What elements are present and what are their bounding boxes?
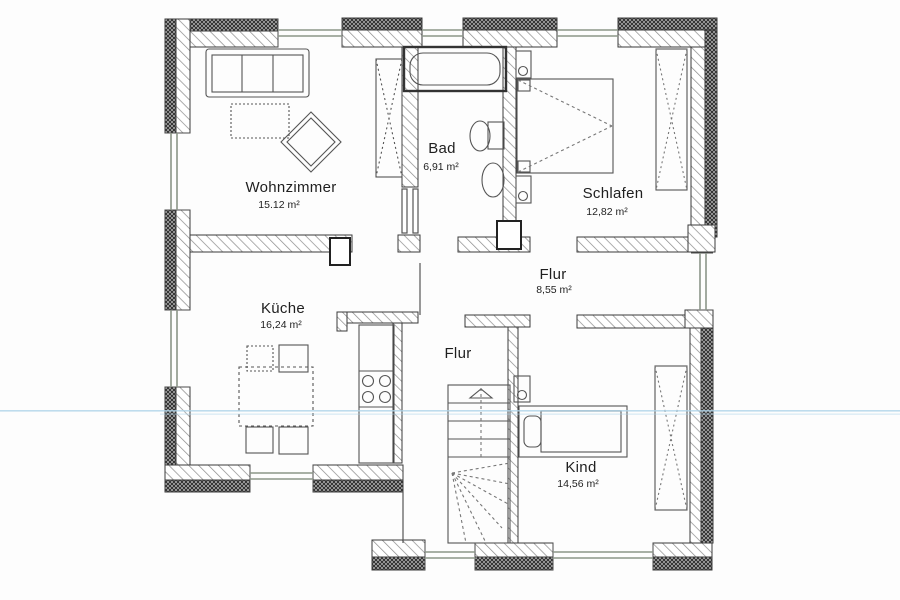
floor-plan-page: Wohnzimmer 15.12 m² Bad 6,91 m² Schlafen… (0, 0, 900, 600)
room-label-kueche: Küche (261, 300, 305, 317)
scan-artifact-lines (0, 410, 900, 415)
kitchen-counter (359, 325, 394, 463)
interior-walls (190, 47, 715, 543)
sink (482, 163, 504, 197)
chair (279, 427, 308, 454)
room-label-kind: Kind (565, 459, 596, 476)
bad-door-jamb (402, 189, 407, 233)
side-table (281, 112, 341, 172)
kitchen-table (239, 367, 313, 426)
toilet (470, 121, 504, 151)
chimney-flue (330, 238, 350, 265)
room-label-flur: Flur (539, 266, 566, 283)
sofa (206, 49, 309, 97)
chair (246, 427, 273, 453)
wall-flur-bottom-left (465, 315, 530, 327)
stove (363, 376, 391, 403)
window-kind-bottom (553, 552, 653, 558)
furniture (206, 47, 687, 543)
window-kueche-bottom (250, 473, 313, 479)
wall-dark-band (372, 557, 425, 570)
stairs (448, 385, 510, 543)
wall-schlafen-bottom (577, 237, 693, 252)
wall-wohnzimmer-kueche (190, 235, 352, 252)
winder-treads (452, 463, 510, 543)
wall-bad-left-end (398, 235, 420, 252)
window-bad-top (422, 30, 463, 36)
wardrobe-schlafen (656, 49, 687, 190)
wall-dark-band (475, 557, 553, 570)
window-vestibule-bottom (425, 552, 475, 558)
bad-door-jamb (413, 189, 418, 233)
wall-kind-top (577, 315, 688, 328)
window-wohnzimmer-top (278, 30, 342, 36)
chimney-flue (497, 221, 521, 249)
wardrobe-kind (655, 366, 687, 510)
window-flur-right (700, 253, 706, 310)
bathtub (404, 47, 506, 91)
wall-dark-band (618, 18, 717, 30)
wall-dark-band (313, 480, 403, 492)
wall-dark-band (165, 210, 176, 310)
bed-schlafen (517, 79, 613, 173)
wall-dark-band (653, 557, 712, 570)
wall-dark-band (165, 19, 176, 133)
room-area-schlafen: 12,82 m² (586, 206, 628, 218)
exterior-walls (165, 18, 717, 570)
room-label-schlafen: Schlafen (583, 185, 644, 202)
windows (171, 30, 706, 558)
wall-schlafen-corner (688, 225, 715, 252)
room-area-flur: 8,55 m² (536, 284, 572, 296)
radiator (516, 51, 531, 78)
coffee-table (231, 104, 289, 138)
wall-kind-corner (685, 310, 713, 328)
wall-kueche-stub (337, 312, 347, 331)
room-area-kind: 14,56 m² (557, 478, 599, 490)
room-area-wohnzimmer: 15.12 m² (258, 199, 300, 211)
wall-kueche-topright (337, 312, 418, 323)
floor-plan-drawing: Wohnzimmer 15.12 m² Bad 6,91 m² Schlafen… (0, 0, 900, 600)
room-area-kueche: 16,24 m² (260, 319, 302, 331)
room-label-bad: Bad (428, 140, 456, 157)
room-area-bad: 6,91 m² (423, 161, 459, 173)
radiator (516, 176, 531, 203)
wardrobe-wohnzimmer (376, 59, 402, 177)
window-kueche-left (171, 310, 177, 387)
wall-dark-band (342, 18, 422, 30)
chair (279, 345, 308, 372)
wall-dark-band (463, 18, 557, 30)
wall-dark-band (701, 310, 713, 543)
room-label-flur2: Flur (444, 345, 471, 362)
wall-dark-band (165, 480, 250, 492)
wall-dark-band (705, 30, 717, 237)
window-schlafen-top (557, 30, 618, 36)
room-label-wohnzimmer: Wohnzimmer (245, 179, 336, 196)
window-wohnzimmer-left (171, 133, 177, 210)
